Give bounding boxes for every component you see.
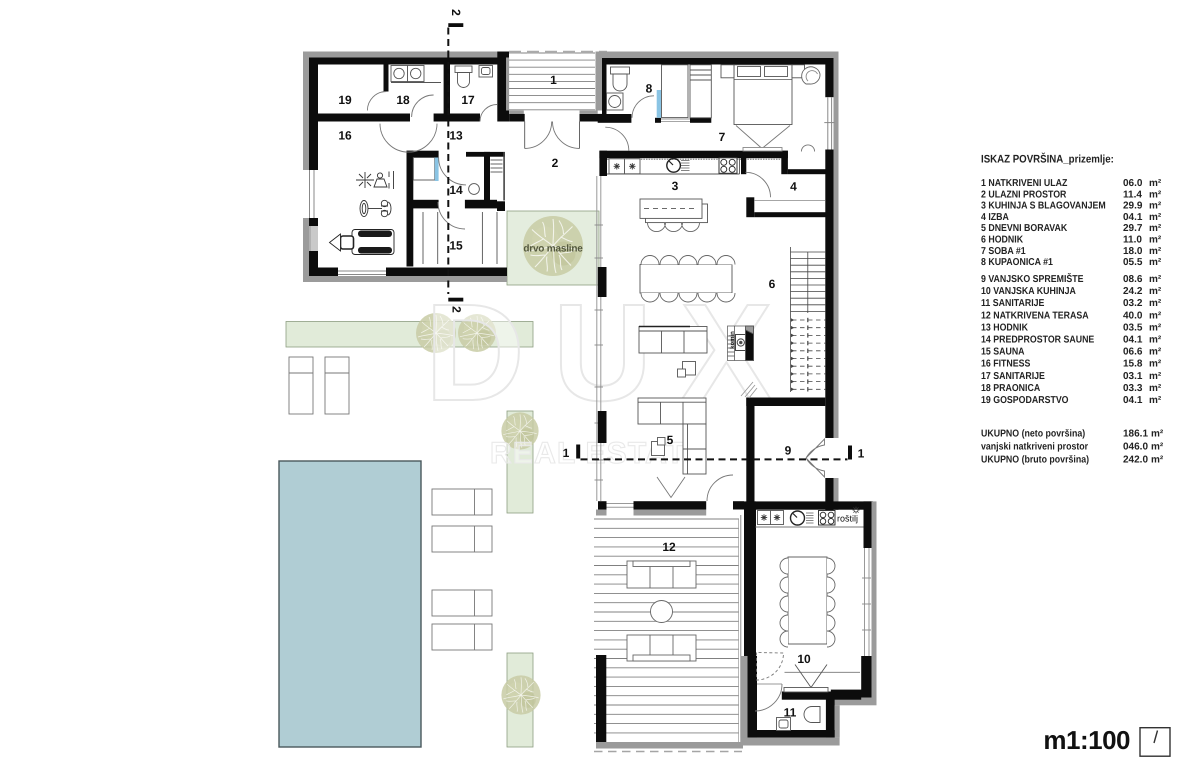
svg-text:4: 4 (790, 180, 797, 194)
svg-text:m²: m² (1149, 383, 1162, 394)
svg-text:m²: m² (1149, 178, 1162, 189)
svg-text:186.1: 186.1 (1123, 428, 1148, 439)
svg-text:16 FITNESS: 16 FITNESS (981, 359, 1031, 370)
svg-text:12: 12 (662, 540, 676, 554)
svg-text:m²: m² (1149, 395, 1162, 406)
svg-text:UKUPNO (neto površina): UKUPNO (neto površina) (981, 428, 1085, 439)
svg-text:6 HODNIK: 6 HODNIK (981, 235, 1024, 246)
svg-text:11.4: 11.4 (1123, 189, 1142, 200)
svg-text:m²: m² (1149, 235, 1162, 246)
svg-text:1: 1 (563, 446, 570, 460)
svg-text:ISKAZ POVRŠINA_prizemlje:: ISKAZ POVRŠINA_prizemlje: (981, 153, 1114, 166)
svg-text:8: 8 (646, 82, 653, 96)
svg-text:06.6: 06.6 (1123, 347, 1143, 358)
svg-text:2 ULAZNI PROSTOR: 2 ULAZNI PROSTOR (981, 189, 1067, 200)
svg-text:14 PREDPROSTOR SAUNE: 14 PREDPROSTOR SAUNE (981, 335, 1095, 346)
svg-text:m²: m² (1149, 310, 1162, 321)
svg-text:24.2: 24.2 (1123, 286, 1143, 297)
svg-text:12 NATKRIVENA TERASA: 12 NATKRIVENA TERASA (981, 310, 1089, 321)
svg-text:1 NATKRIVENI ULAZ: 1 NATKRIVENI ULAZ (981, 178, 1067, 189)
svg-text:5: 5 (667, 433, 674, 447)
svg-text:m²: m² (1149, 189, 1162, 200)
svg-text:m1:100: m1:100 (1043, 725, 1130, 755)
svg-text:m²: m² (1149, 298, 1162, 309)
svg-text:40.0: 40.0 (1123, 310, 1143, 321)
svg-text:17: 17 (461, 93, 475, 107)
svg-text:17 SANITARIJE: 17 SANITARIJE (981, 371, 1045, 382)
svg-text:2: 2 (449, 9, 463, 16)
svg-text:vanjski natkriveni prostor: vanjski natkriveni prostor (981, 441, 1088, 452)
svg-text:14: 14 (449, 183, 463, 197)
svg-text:046.0: 046.0 (1123, 441, 1148, 452)
svg-text:18.0: 18.0 (1123, 246, 1143, 257)
svg-text:11 SANITARIJE: 11 SANITARIJE (981, 298, 1045, 309)
svg-text:11: 11 (784, 706, 797, 720)
svg-text:06.0: 06.0 (1123, 178, 1143, 189)
svg-text:m²: m² (1149, 347, 1162, 358)
svg-text:15: 15 (449, 239, 463, 253)
svg-text:6: 6 (769, 277, 776, 291)
svg-text:29.9: 29.9 (1123, 201, 1143, 212)
svg-text:2: 2 (552, 156, 559, 170)
svg-text:03.5: 03.5 (1123, 322, 1143, 333)
svg-text:m²: m² (1149, 274, 1162, 285)
svg-text:18 PRAONICA: 18 PRAONICA (981, 383, 1040, 394)
svg-text:03.1: 03.1 (1123, 371, 1143, 382)
svg-text:7: 7 (719, 130, 726, 144)
svg-text:5 DNEVNI BORAVAK: 5 DNEVNI BORAVAK (981, 223, 1068, 234)
svg-text:13: 13 (449, 129, 463, 143)
svg-text:UKUPNO (bruto površina): UKUPNO (bruto površina) (981, 454, 1089, 465)
svg-text:m²: m² (1149, 359, 1162, 370)
svg-text:m²: m² (1149, 371, 1162, 382)
svg-text:m²: m² (1149, 201, 1162, 212)
svg-text:16: 16 (338, 129, 352, 143)
svg-text:03.3: 03.3 (1123, 383, 1143, 394)
svg-text:m²: m² (1149, 223, 1162, 234)
svg-text:m²: m² (1149, 212, 1162, 223)
svg-text:8 KUPAONICA #1: 8 KUPAONICA #1 (981, 257, 1053, 268)
svg-text:04.1: 04.1 (1123, 212, 1143, 223)
svg-text:1: 1 (550, 73, 557, 87)
svg-text:3 KUHINJA S BLAGOVANJEM: 3 KUHINJA S BLAGOVANJEM (981, 201, 1106, 212)
svg-text:m²: m² (1149, 286, 1162, 297)
svg-text:7 SOBA #1: 7 SOBA #1 (981, 246, 1026, 257)
svg-text:3: 3 (672, 179, 679, 193)
svg-text:03.2: 03.2 (1123, 298, 1143, 309)
svg-text:242.0: 242.0 (1123, 454, 1148, 465)
svg-text:m²: m² (1151, 454, 1164, 465)
svg-text:m²: m² (1151, 428, 1164, 439)
svg-text:m²: m² (1151, 441, 1164, 452)
svg-text:komin: komin (729, 331, 736, 349)
svg-text:1: 1 (858, 447, 865, 461)
svg-text:11.0: 11.0 (1123, 235, 1142, 246)
svg-text:29.7: 29.7 (1123, 223, 1143, 234)
svg-text:08.6: 08.6 (1123, 274, 1143, 285)
svg-text:10: 10 (797, 652, 811, 666)
svg-text:19 GOSPODARSTVO: 19 GOSPODARSTVO (981, 395, 1069, 406)
svg-text:m²: m² (1149, 322, 1162, 333)
svg-text:10 VANJSKA KUHINJA: 10 VANJSKA KUHINJA (981, 286, 1076, 297)
svg-text:m²: m² (1149, 257, 1162, 268)
svg-text:13 HODNIK: 13 HODNIK (981, 322, 1029, 333)
svg-text:9 VANJSKO SPREMIŠTE: 9 VANJSKO SPREMIŠTE (981, 273, 1084, 285)
svg-text:m²: m² (1149, 335, 1162, 346)
svg-text:15.8: 15.8 (1123, 359, 1143, 370)
svg-text:04.1: 04.1 (1123, 335, 1143, 346)
svg-text:drvo masline: drvo masline (523, 244, 583, 255)
svg-text:19: 19 (338, 93, 352, 107)
svg-text:04.1: 04.1 (1123, 395, 1143, 406)
svg-text:4 IZBA: 4 IZBA (981, 212, 1009, 223)
svg-text:m²: m² (1149, 246, 1162, 257)
svg-text:roštilj: roštilj (837, 514, 858, 524)
svg-text:2: 2 (450, 306, 464, 313)
svg-text:18: 18 (396, 93, 410, 107)
svg-text:05.5: 05.5 (1123, 257, 1143, 268)
svg-text:15 SAUNA: 15 SAUNA (981, 347, 1025, 358)
svg-text:9: 9 (785, 444, 792, 458)
